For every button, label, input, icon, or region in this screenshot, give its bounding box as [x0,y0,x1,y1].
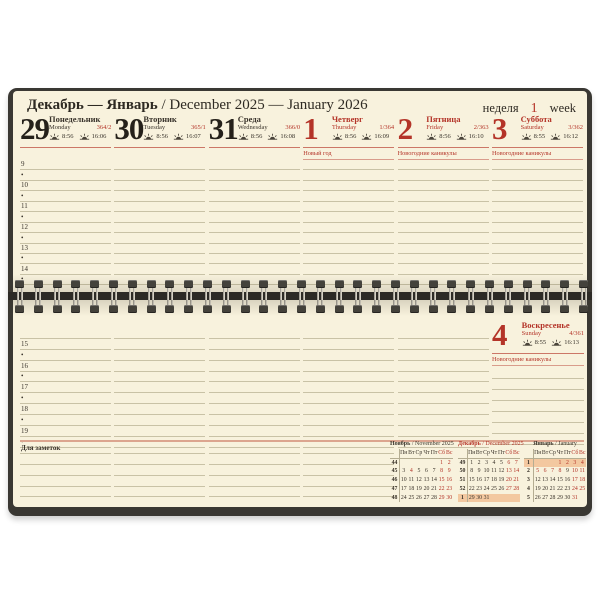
calendar-day-cell: 24 [400,494,408,503]
time-row [492,202,583,212]
sunset-time: 16:06 [92,133,107,140]
calendar-corner [524,449,534,459]
calendar-day-cell: 3 [483,459,490,468]
time-label: • [21,193,23,200]
sunrise-time: 8:56 [62,133,74,140]
sunset-icon [267,133,278,140]
time-row [303,393,394,404]
time-row [303,212,394,222]
note-line [209,443,300,454]
note-line [209,465,300,476]
week-number: 49 [458,459,468,468]
time-row [209,382,300,393]
sunday-rules [492,368,584,445]
note-line [114,487,205,498]
time-row [492,223,583,233]
calendar-day-cell: 6 [541,467,548,476]
day-header-rule [114,147,205,148]
day-name-en: Friday [426,124,443,131]
calendar-day-cell: 27 [505,485,512,494]
day-header: 29 Понедельник Monday364/2 8:5616:06 [20,114,111,145]
week-number: 52 [458,485,468,494]
time-row [303,382,394,393]
time-row [303,254,394,264]
time-row [303,372,394,383]
day-name-ru: Воскресенье [522,321,584,330]
calendar-day-cell: 4 [490,459,497,468]
calendar-day-cell: 7 [549,467,556,476]
note-line [114,465,205,476]
desk-planner: Декабрь — Январь / December 2025 — Janua… [8,88,592,516]
time-row: 18 [20,404,111,415]
calendar-day-cell: 23 [445,485,453,494]
calendar-day-cell: 10 [571,467,578,476]
calendar-day-cell: 18 [490,476,497,485]
time-label: 12 [21,224,28,231]
sunrise-time: 8:55 [535,339,547,346]
time-label: • [21,235,23,242]
weekday-header: Чт [556,449,563,459]
calendar-day-cell [490,494,497,503]
time-row [492,412,584,423]
calendar-day-cell: 14 [549,476,556,485]
calendar-day-cell: 5 [534,467,541,476]
time-label: • [21,395,23,402]
time-row [114,415,205,426]
weekday-header: Ср [415,449,423,459]
time-row: 10 [20,181,111,191]
calendar-day-cell: 26 [534,494,541,503]
sunrise-time: 8:56 [439,133,451,140]
time-row: • [20,170,111,180]
sunset-time: 16:07 [186,133,201,140]
calendar-title: Декабрь / December 2025 [458,441,520,448]
weekday-header: Чт [423,449,431,459]
calendar-day-cell: 8 [438,467,446,476]
calendar-day-cell: 4 [408,467,416,476]
calendar-day-cell [534,459,541,468]
sunrise-icon [522,339,533,346]
time-label: • [21,352,23,359]
day-name-ru: Вторник [143,115,205,124]
calendar-day-cell: 17 [483,476,490,485]
time-row [209,202,300,212]
calendar-day-cell: 19 [534,485,541,494]
day-name-en: Saturday [521,124,544,131]
notes-column [114,443,205,497]
calendar-day-cell [498,494,505,503]
calendar-day-cell: 7 [430,467,438,476]
weekday-header: Ср [549,449,556,459]
time-row: 16 [20,361,111,372]
time-row [492,368,584,379]
day-of-year: 366/0 [285,124,300,131]
time-row [398,426,489,437]
day-number: 4 [492,320,522,351]
day-header-rule [20,147,111,148]
time-row [303,223,394,233]
calendar-day-cell: 12 [415,476,423,485]
calendar-day-cell [408,459,416,468]
time-row [114,393,205,404]
calendar-day-cell [579,494,586,503]
time-row: • [20,372,111,383]
week-number: 2 [524,467,534,476]
day-of-year: 364/2 [97,124,112,131]
calendar-day-cell: 22 [556,485,563,494]
note-line [303,443,394,454]
calendar-day-cell [505,494,512,503]
calendar-day-cell: 24 [571,485,578,494]
sun-times: 8:5616:09 [332,133,394,140]
calendar-day-cell: 16 [445,476,453,485]
time-row [209,328,300,339]
calendar-day-cell: 21 [513,476,520,485]
notes-column [209,443,300,497]
time-row [398,244,489,254]
notes-column: Для заметок [20,443,111,497]
calendar-day-cell: 20 [541,485,548,494]
weekday-header: Чт [490,449,497,459]
calendar-day-cell: 30 [564,494,571,503]
calendar-day-cell [400,459,408,468]
time-row [398,415,489,426]
week-label-en: week [550,101,576,115]
mini-calendar-2: Январь / January ПнВтСрЧтПтСбВс112342567… [524,441,586,502]
time-row [303,181,394,191]
note-line [209,487,300,498]
week-number: 5 [524,494,534,503]
calendar-day-cell: 10 [483,467,490,476]
calendar-day-cell: 13 [423,476,431,485]
sunset-time: 16:10 [469,133,484,140]
day-name-en: Thursday [332,124,357,131]
time-row [114,202,205,212]
time-row [209,244,300,254]
page-edge-shadow-bottom [8,300,592,316]
holiday-label: Новый год [303,148,394,160]
time-row [303,160,394,170]
time-row: • [20,350,111,361]
calendar-day-cell: 6 [505,459,512,468]
sunset-time: 16:13 [564,339,579,346]
time-row [209,233,300,243]
time-row [398,372,489,383]
calendar-day-cell: 29 [556,494,563,503]
time-label: • [21,373,23,380]
time-row [209,212,300,222]
weekday-header: Пн [400,449,408,459]
calendar-day-cell: 31 [571,494,578,503]
time-row [114,426,205,437]
time-row [398,170,489,180]
time-row [492,244,583,254]
page-title-en: / December 2025 — January 2026 [158,97,368,113]
day-header: 31 Среда Wednesday366/0 8:5616:08 [209,114,300,145]
calendar-day-cell: 30 [475,494,482,503]
time-row [114,181,205,191]
sunset-icon [550,133,561,140]
day-number: 31 [209,114,238,145]
sunrise-icon [49,133,60,140]
calendar-day-cell: 23 [564,485,571,494]
calendar-day-cell: 3 [571,459,578,468]
calendar-day-cell: 18 [579,476,586,485]
note-line: Для заметок [20,443,111,454]
calendar-day-cell: 28 [430,494,438,503]
time-row [492,170,583,180]
sunrise-icon [332,133,343,140]
sunrise-icon [238,133,249,140]
note-line [114,443,205,454]
time-row [209,393,300,404]
weekday-header: Сб [571,449,578,459]
calendar-title: Январь / January [524,441,586,448]
calendar-corner [390,449,400,459]
week-number: 48 [390,494,400,503]
holiday-label: Новогодние каникулы [492,148,583,160]
calendar-day-cell: 9 [475,467,482,476]
calendar-day-cell: 21 [430,485,438,494]
time-row [114,254,205,264]
calendar-day-cell: 30 [445,494,453,503]
week-number: 46 [390,476,400,485]
sunset-icon [173,133,184,140]
day-column-monday: 29 Понедельник Monday364/2 8:5616:06 [20,114,111,164]
time-row [209,223,300,233]
time-row [398,223,489,233]
time-label: 16 [21,363,28,370]
time-row: 15 [20,339,111,350]
day-column-thursday: 1 Четверг Thursday1/364 8:5616:09 Новый … [303,114,394,164]
note-line [209,454,300,465]
time-row [209,361,300,372]
calendar-day-cell: 5 [498,459,505,468]
time-row [492,160,583,170]
calendar-day-cell: 12 [498,467,505,476]
sunrise-time: 8:56 [251,133,263,140]
time-row [209,415,300,426]
time-row [209,339,300,350]
time-label: 14 [21,266,28,273]
time-label: 13 [21,245,28,252]
time-grid-column [303,328,394,448]
day-number: 1 [303,114,332,145]
day-column-sunday: 4 Воскресенье Sunday4/361 8:5516:13 Ново… [492,320,584,370]
calendar-day-cell: 26 [415,494,423,503]
time-row [398,254,489,264]
sun-times: 8:5516:13 [522,339,584,346]
day-header: 1 Четверг Thursday1/364 8:5616:09 [303,114,394,145]
time-row [114,212,205,222]
time-row: • [20,254,111,264]
time-label: • [21,214,23,221]
note-line [20,476,111,487]
calendar-day-cell: 6 [423,467,431,476]
time-row [398,393,489,404]
time-label: 9 [21,161,25,168]
calendar-day-cell: 9 [445,467,453,476]
sunrise-icon [521,133,532,140]
calendar-day-cell: 2 [475,459,482,468]
time-label: 18 [21,406,28,413]
notes-label: Для заметок [21,444,60,452]
calendar-day-cell: 18 [408,485,416,494]
calendar-day-cell: 2 [445,459,453,468]
time-label: • [21,255,23,262]
calendar-day-cell: 29 [438,494,446,503]
calendar-day-cell: 12 [534,476,541,485]
calendar-day-cell: 27 [423,494,431,503]
calendar-day-cell: 8 [468,467,475,476]
day-name-en: Wednesday [238,124,268,131]
time-row [492,254,583,264]
note-line [20,454,111,465]
day-name-ru: Четверг [332,115,394,124]
time-label: 11 [21,203,28,210]
time-row [114,361,205,372]
calendar-day-cell: 14 [513,467,520,476]
calendar-day-cell: 17 [571,476,578,485]
time-grid-column [209,328,300,448]
mini-calendar-0: Ноябрь / November 2025 ПнВтСрЧтПтСбВс441… [390,441,453,502]
week-number: 1 [524,459,534,468]
calendar-day-cell: 28 [513,485,520,494]
product-photo-background: { "header": { "title_ru": "Декабрь — Янв… [0,0,600,600]
calendar-day-cell: 22 [438,485,446,494]
weekday-header: Вт [408,449,416,459]
time-row [114,382,205,393]
time-row [114,350,205,361]
time-row [398,233,489,243]
weekday-header: Ср [483,449,490,459]
day-name-en: Tuesday [143,124,165,131]
day-header: 30 Вторник Tuesday365/1 8:5616:07 [114,114,205,145]
holiday-label: Новогодние каникулы [492,354,584,366]
weekday-header: Вт [475,449,482,459]
weekday-header: Пт [498,449,505,459]
time-row: • [20,393,111,404]
sunset-time: 16:09 [374,133,389,140]
day-name-en: Monday [49,124,71,131]
calendar-day-cell: 4 [579,459,586,468]
time-grid-column [209,160,300,285]
time-grid-column [114,160,205,285]
sunrise-icon [426,133,437,140]
calendar-day-cell: 10 [400,476,408,485]
day-number: 29 [20,114,49,145]
calendar-day-cell: 1 [556,459,563,468]
day-header: 3 Суббота Saturday3/362 8:5516:12 [492,114,583,145]
sunrise-icon [143,133,154,140]
time-row [209,170,300,180]
notes-column [303,443,394,497]
time-row [209,404,300,415]
time-row: 13 [20,244,111,254]
time-row [492,181,583,191]
time-row [303,415,394,426]
calendar-day-cell: 16 [564,476,571,485]
day-of-year: 2/363 [474,124,489,131]
time-grid-column [114,328,205,448]
day-number: 2 [398,114,427,145]
calendar-day-cell: 8 [556,467,563,476]
time-row [114,372,205,383]
calendar-day-cell: 1 [468,459,475,468]
calendar-day-cell: 15 [468,476,475,485]
weekday-header: Пн [534,449,541,459]
day-name-ru: Понедельник [49,115,111,124]
note-line [114,476,205,487]
time-row [492,379,584,390]
calendar-day-cell: 14 [430,476,438,485]
week-number: 51 [458,476,468,485]
day-column-tuesday: 30 Вторник Tuesday365/1 8:5616:07 [114,114,205,164]
calendar-day-cell: 17 [400,485,408,494]
time-row [114,233,205,243]
time-label: • [21,417,23,424]
time-grid-column [398,328,489,448]
sun-times: 8:5616:06 [49,133,111,140]
calendar-day-cell: 28 [549,494,556,503]
day-header-rule [209,147,300,148]
weekday-header: Вс [579,449,586,459]
week-number: 44 [390,459,400,468]
note-line [20,487,111,498]
time-row [303,244,394,254]
time-row [398,339,489,350]
time-row [114,170,205,180]
calendar-day-cell: 15 [438,476,446,485]
calendar-day-cell: 25 [490,485,497,494]
time-row: 19 [20,426,111,437]
weekday-header: Вс [445,449,453,459]
week-number: 4 [524,485,534,494]
day-of-year: 4/361 [569,330,584,337]
weekday-header: Пт [564,449,571,459]
calendar-day-cell: 25 [408,494,416,503]
time-row: • [20,212,111,222]
time-row [492,423,584,434]
calendar-day-cell: 3 [400,467,408,476]
mini-calendar-1: Декабрь / December 2025 ПнВтСрЧтПтСбВс49… [458,441,520,502]
time-row [398,202,489,212]
calendar-day-cell: 29 [468,494,475,503]
note-line [303,487,394,498]
week-number: 3 [524,476,534,485]
holiday-label: Новогодние каникулы [398,148,489,160]
time-grid-column [398,160,489,285]
time-row [492,191,583,201]
time-grid-column [492,160,583,285]
calendar-day-cell: 24 [483,485,490,494]
calendar-day-cell [430,459,438,468]
time-row: 12 [20,223,111,233]
sun-times: 8:5616:07 [143,133,205,140]
weekday-header: Сб [438,449,446,459]
calendar-day-cell: 2 [564,459,571,468]
time-row [114,404,205,415]
time-row [303,361,394,372]
day-of-year: 1/364 [379,124,394,131]
note-line [303,454,394,465]
time-row [114,223,205,233]
time-row [303,426,394,437]
sunset-icon [79,133,90,140]
time-grid-column: 15•16•17•18•19• [20,328,111,448]
calendar-day-cell [415,459,423,468]
time-label: 17 [21,384,28,391]
